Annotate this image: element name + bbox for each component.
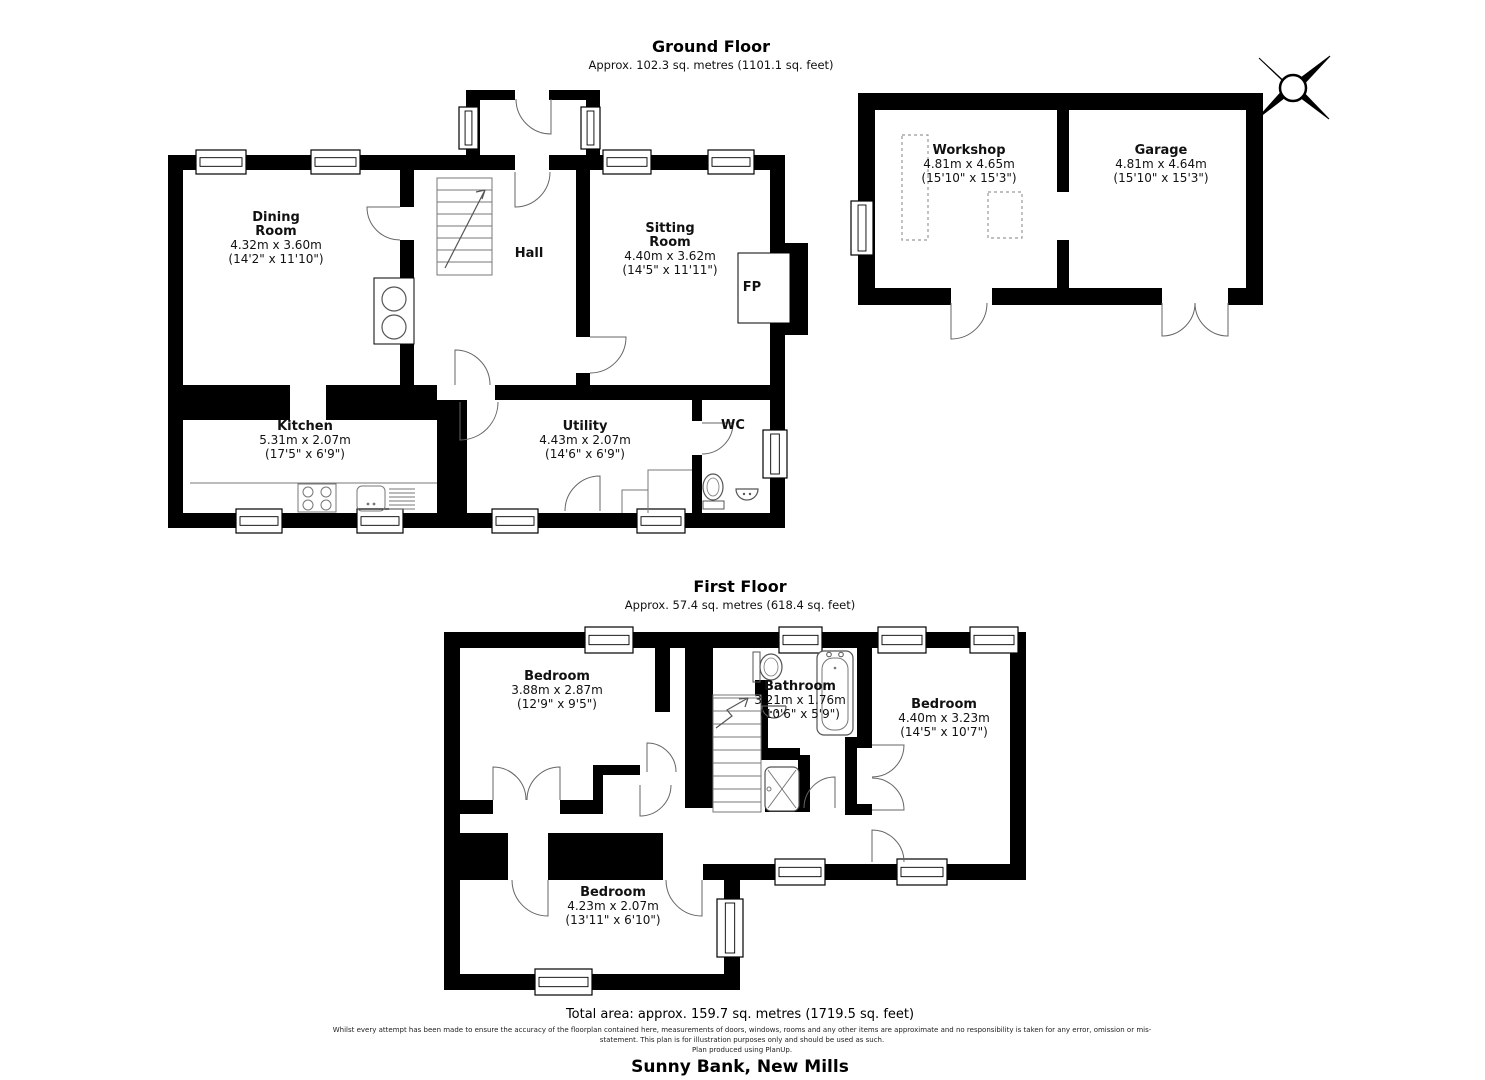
fireplace-niche — [738, 253, 790, 323]
workshop-benches — [902, 135, 1022, 240]
stairs-ground — [437, 178, 492, 275]
kitchen-fixtures — [190, 483, 437, 512]
walls — [168, 90, 1263, 990]
shower-fixture — [765, 767, 799, 811]
floorplan-canvas: Ground Floor Approx. 102.3 sq. metres (1… — [0, 0, 1485, 1080]
compass-icon — [1257, 56, 1330, 119]
stairs-first — [713, 695, 761, 812]
stove-fixture — [374, 278, 414, 344]
wc-fixtures — [703, 474, 758, 509]
floorplan-drawing — [0, 0, 1485, 1080]
utility-counter — [622, 470, 692, 513]
